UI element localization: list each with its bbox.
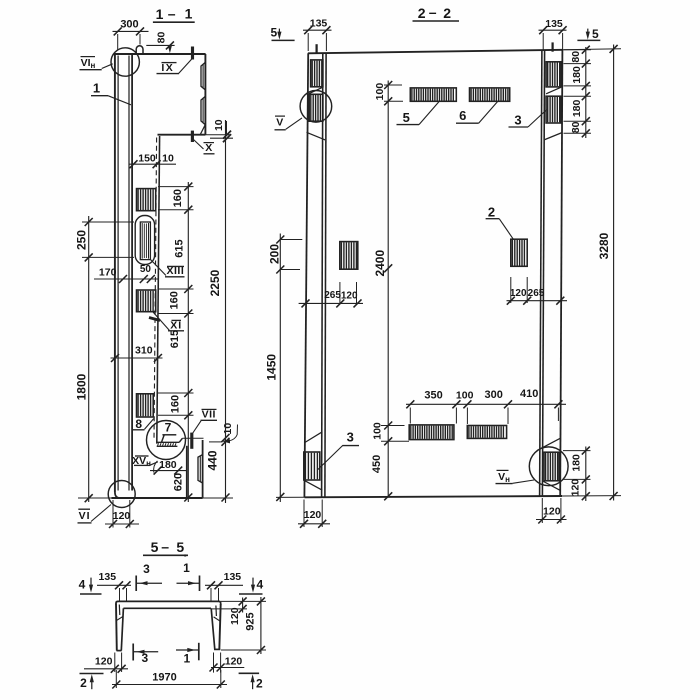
svg-text:4: 4 xyxy=(256,577,263,591)
svg-text:100: 100 xyxy=(371,422,383,440)
svg-text:200: 200 xyxy=(267,244,281,264)
svg-text:8: 8 xyxy=(135,417,142,431)
svg-text:160: 160 xyxy=(172,189,184,207)
svg-text:–: – xyxy=(429,4,437,20)
svg-text:925: 925 xyxy=(244,612,256,630)
svg-text:615: 615 xyxy=(169,330,181,348)
svg-text:2: 2 xyxy=(418,5,426,21)
svg-text:VI: VI xyxy=(79,510,91,522)
svg-text:6: 6 xyxy=(459,108,466,123)
svg-text:5: 5 xyxy=(271,26,278,40)
svg-text:7: 7 xyxy=(165,421,172,435)
svg-text:1450: 1450 xyxy=(265,354,279,381)
svg-text:160: 160 xyxy=(170,395,182,413)
svg-text:620: 620 xyxy=(172,473,184,491)
svg-text:80: 80 xyxy=(570,121,582,133)
svg-text:V: V xyxy=(276,117,283,129)
svg-text:80: 80 xyxy=(570,51,582,63)
svg-text:120: 120 xyxy=(510,288,527,299)
svg-text:–: – xyxy=(168,6,176,22)
svg-text:135: 135 xyxy=(99,571,117,583)
svg-text:3: 3 xyxy=(143,562,150,576)
svg-text:180: 180 xyxy=(570,454,582,472)
svg-text:180: 180 xyxy=(159,459,177,471)
svg-text:2250: 2250 xyxy=(208,269,222,296)
svg-text:120: 120 xyxy=(570,479,582,497)
svg-text:300: 300 xyxy=(120,18,138,30)
svg-text:2400: 2400 xyxy=(373,250,387,277)
svg-text:310: 310 xyxy=(135,345,153,357)
svg-text:135: 135 xyxy=(224,571,242,583)
svg-text:2: 2 xyxy=(488,204,495,219)
svg-text:1: 1 xyxy=(183,561,190,575)
svg-text:5: 5 xyxy=(592,27,599,41)
svg-text:120: 120 xyxy=(95,655,113,667)
svg-text:80: 80 xyxy=(155,32,167,44)
svg-text:.: . xyxy=(183,544,187,560)
svg-text:10: 10 xyxy=(222,423,234,435)
svg-text:170: 170 xyxy=(99,266,117,278)
svg-text:4: 4 xyxy=(79,577,86,591)
svg-text:265: 265 xyxy=(528,288,545,299)
svg-text:100: 100 xyxy=(374,83,386,101)
svg-text:300: 300 xyxy=(485,389,503,401)
svg-text:3: 3 xyxy=(347,430,354,445)
svg-text:XIII: XIII xyxy=(167,265,185,277)
svg-text:250: 250 xyxy=(75,230,89,250)
svg-text:1800: 1800 xyxy=(74,373,88,400)
svg-text:–: – xyxy=(161,538,169,554)
svg-text:50: 50 xyxy=(140,264,152,275)
svg-text:160: 160 xyxy=(168,291,180,309)
svg-text:120: 120 xyxy=(225,655,243,667)
svg-text:1970: 1970 xyxy=(152,672,176,684)
svg-text:1: 1 xyxy=(156,6,164,22)
svg-text:5: 5 xyxy=(151,539,159,555)
svg-text:615: 615 xyxy=(174,239,186,257)
svg-text:120: 120 xyxy=(113,510,131,522)
svg-text:440: 440 xyxy=(206,450,220,470)
svg-text:3280: 3280 xyxy=(597,232,611,259)
svg-text:265: 265 xyxy=(324,290,341,301)
svg-text:350: 350 xyxy=(424,389,442,401)
svg-text:X: X xyxy=(205,142,212,154)
svg-text:410: 410 xyxy=(520,388,538,400)
svg-text:10: 10 xyxy=(162,153,174,165)
svg-text:120: 120 xyxy=(543,506,561,518)
svg-text:1: 1 xyxy=(185,6,193,22)
svg-text:3: 3 xyxy=(514,113,521,128)
svg-text:2: 2 xyxy=(256,676,263,690)
svg-text:135: 135 xyxy=(310,17,328,29)
svg-text:2: 2 xyxy=(80,676,87,690)
svg-text:IX: IX xyxy=(161,62,174,74)
svg-text:XI: XI xyxy=(170,319,182,331)
svg-text:100: 100 xyxy=(456,390,474,402)
svg-text:VII: VII xyxy=(202,409,216,421)
svg-text:180: 180 xyxy=(571,66,583,84)
svg-text:10: 10 xyxy=(213,119,225,131)
svg-text:1: 1 xyxy=(93,81,100,96)
svg-text:3: 3 xyxy=(141,651,148,665)
svg-text:150: 150 xyxy=(138,152,156,164)
svg-text:5: 5 xyxy=(403,110,410,125)
svg-text:120: 120 xyxy=(304,509,322,521)
svg-text:135: 135 xyxy=(545,18,563,30)
svg-text:450: 450 xyxy=(371,455,383,473)
svg-text:120: 120 xyxy=(341,291,358,302)
svg-text:2: 2 xyxy=(443,5,451,21)
svg-text:1: 1 xyxy=(183,651,190,665)
svg-text:180: 180 xyxy=(571,99,583,117)
svg-text:120: 120 xyxy=(229,607,241,625)
